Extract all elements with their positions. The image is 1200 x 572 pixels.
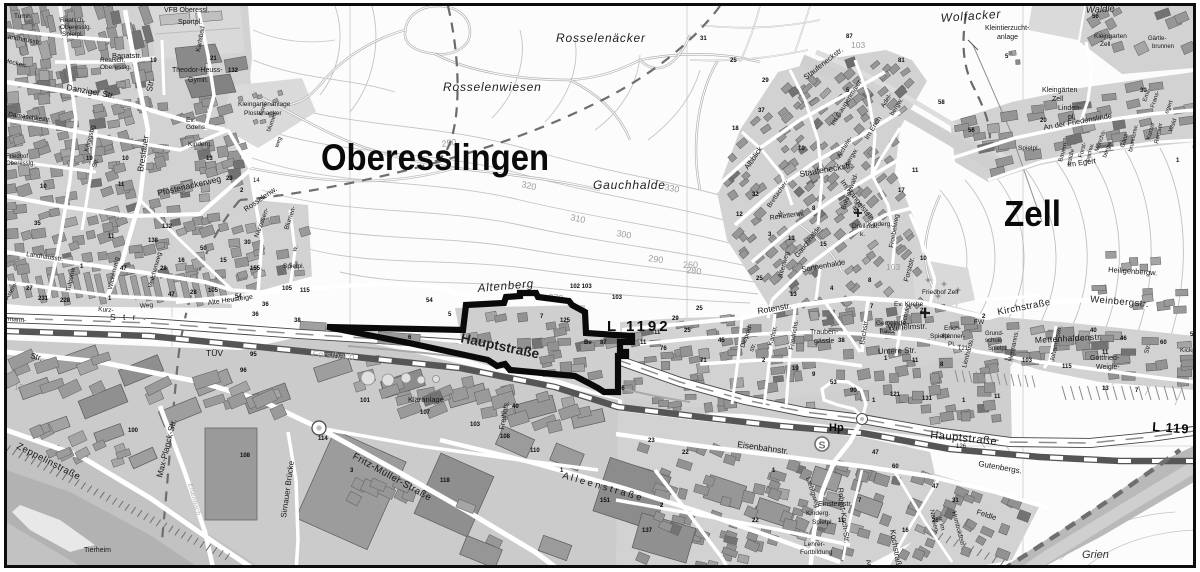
svg-text:Oberesslg.: Oberesslg.: [100, 64, 132, 71]
svg-text:53: 53: [830, 380, 837, 386]
svg-text:137: 137: [642, 528, 653, 534]
svg-text:Tierheim: Tierheim: [84, 547, 111, 554]
svg-text:Pl.: Pl.: [948, 341, 956, 348]
svg-text:Zell: Zell: [1052, 96, 1064, 103]
svg-text:S t r .: S t r .: [110, 312, 148, 322]
svg-text:132: 132: [162, 224, 173, 230]
svg-text:19: 19: [792, 366, 799, 372]
svg-text:Linden-: Linden-: [1058, 105, 1082, 112]
svg-text:29: 29: [762, 78, 769, 84]
svg-text:Kläranlage: Kläranlage: [408, 395, 444, 404]
svg-text:95: 95: [250, 352, 257, 358]
svg-text:103: 103: [886, 262, 900, 272]
svg-text:brunnen: brunnen: [1152, 44, 1174, 50]
svg-text:27: 27: [26, 286, 33, 292]
svg-text:58: 58: [938, 100, 945, 106]
svg-text:28: 28: [160, 266, 167, 272]
svg-text:31: 31: [700, 36, 707, 42]
svg-text:15: 15: [220, 258, 227, 264]
svg-text:18: 18: [732, 126, 739, 132]
svg-text:151: 151: [600, 498, 611, 504]
svg-text:32: 32: [752, 192, 759, 198]
svg-text:90: 90: [850, 388, 857, 394]
svg-text:60: 60: [892, 464, 899, 470]
svg-text:Realsch.: Realsch.: [100, 57, 125, 64]
svg-text:Theodor-Heuss-: Theodor-Heuss-: [172, 67, 223, 74]
svg-text:54: 54: [235, 294, 242, 300]
svg-text:Ev.: Ev.: [186, 117, 195, 124]
svg-text:Lehrer-: Lehrer-: [804, 541, 825, 548]
svg-text:Friedhof Zell: Friedhof Zell: [922, 289, 959, 296]
svg-text:108: 108: [500, 434, 511, 440]
svg-text:10: 10: [920, 256, 927, 262]
svg-text:Realsch.: Realsch.: [60, 17, 85, 24]
svg-text:Kinderg.: Kinderg.: [868, 221, 892, 228]
svg-text:13: 13: [206, 156, 213, 162]
svg-text:38: 38: [838, 338, 845, 344]
svg-text:19: 19: [86, 156, 93, 162]
svg-text:29: 29: [672, 316, 679, 322]
svg-text:47: 47: [932, 484, 939, 490]
svg-text:Spielpl.: Spielpl.: [1018, 145, 1040, 152]
svg-text:10: 10: [122, 156, 129, 162]
svg-text:25: 25: [684, 328, 691, 334]
svg-text:Oberesslingen: Oberesslingen: [321, 137, 549, 178]
svg-text:11: 11: [994, 394, 1001, 400]
svg-text:31: 31: [952, 498, 959, 504]
svg-text:Turnh.: Turnh.: [14, 13, 33, 20]
svg-text:Hp: Hp: [829, 422, 844, 434]
svg-text:Grund-: Grund-: [985, 331, 1004, 337]
svg-text:228: 228: [60, 298, 71, 304]
svg-text:121: 121: [14, 382, 28, 392]
svg-text:138: 138: [148, 238, 159, 244]
svg-text:37: 37: [758, 108, 765, 114]
svg-text:115: 115: [300, 288, 310, 294]
svg-text:Kurz-: Kurz-: [98, 306, 114, 314]
svg-text:20: 20: [1040, 118, 1047, 124]
svg-text:anlage: anlage: [997, 34, 1018, 41]
svg-text:114: 114: [318, 436, 328, 442]
svg-text:23: 23: [226, 176, 233, 182]
svg-text:47: 47: [872, 450, 879, 456]
svg-text:13: 13: [1102, 386, 1109, 392]
svg-text:231: 231: [38, 296, 49, 302]
svg-text:Spielpl.: Spielpl.: [988, 346, 1008, 352]
svg-text:11: 11: [838, 518, 845, 524]
svg-text:Friedhof: Friedhof: [6, 154, 28, 160]
svg-text:87: 87: [600, 340, 607, 346]
svg-text:Str.: Str.: [144, 78, 156, 92]
svg-text:Rosselenäcker: Rosselenäcker: [556, 31, 646, 45]
svg-text:10: 10: [40, 184, 47, 190]
svg-text:25: 25: [756, 276, 763, 282]
svg-text:Weigle-: Weigle-: [1096, 364, 1120, 371]
svg-text:71: 71: [700, 358, 707, 364]
svg-text:115: 115: [345, 329, 355, 335]
svg-text:105: 105: [282, 286, 293, 292]
svg-text:Kinderg.: Kinderg.: [188, 141, 212, 148]
svg-text:108: 108: [240, 453, 251, 459]
svg-text:38: 38: [294, 318, 301, 324]
svg-text:25: 25: [696, 306, 703, 312]
svg-text:FW: FW: [974, 319, 985, 326]
svg-text:40: 40: [1090, 328, 1097, 334]
svg-text:S: S: [818, 440, 825, 452]
svg-text:30: 30: [1140, 88, 1147, 94]
svg-text:Untere Str.: Untere Str.: [878, 346, 917, 356]
svg-text:21: 21: [210, 56, 217, 62]
svg-text:11: 11: [118, 182, 125, 188]
svg-text:10: 10: [798, 146, 805, 152]
svg-text:96: 96: [240, 368, 247, 374]
svg-text:Gdehs.: Gdehs.: [186, 124, 207, 131]
svg-text:11: 11: [1102, 350, 1109, 356]
svg-text:Spielpl.: Spielpl.: [283, 263, 305, 270]
svg-text:131: 131: [922, 396, 933, 402]
svg-text:47: 47: [120, 266, 127, 272]
svg-text:36: 36: [262, 302, 269, 308]
svg-text:16: 16: [178, 258, 185, 264]
svg-text:155: 155: [250, 266, 261, 272]
svg-text:Gauchhalde: Gauchhalde: [593, 178, 666, 192]
svg-text:56: 56: [1092, 14, 1099, 20]
svg-text:Zell: Zell: [1100, 41, 1111, 48]
svg-text:Be: Be: [584, 340, 592, 346]
svg-text:45: 45: [718, 338, 725, 344]
svg-text:81: 81: [898, 58, 905, 64]
svg-text:Fortbildung: Fortbildung: [800, 549, 833, 556]
svg-text:40: 40: [512, 404, 519, 410]
svg-text:103: 103: [612, 295, 623, 301]
svg-text:Wilhelmstr.: Wilhelmstr.: [888, 322, 927, 332]
svg-text:schule: schule: [985, 338, 1003, 344]
svg-text:Erich-: Erich-: [944, 325, 961, 332]
svg-text:102 103: 102 103: [570, 284, 592, 290]
svg-text:VFB Oberessl.: VFB Oberessl.: [164, 7, 210, 14]
svg-text:101: 101: [360, 398, 371, 404]
svg-text:L 1192: L 1192: [607, 318, 671, 335]
svg-text:103: 103: [851, 40, 865, 50]
svg-text:22: 22: [920, 308, 927, 314]
svg-text:Kinderg.: Kinderg.: [806, 510, 830, 517]
svg-text:107: 107: [420, 410, 431, 416]
svg-text:125: 125: [560, 318, 571, 324]
svg-text:TÜV: TÜV: [206, 348, 223, 358]
svg-text:121: 121: [890, 392, 901, 398]
svg-text:76: 76: [660, 346, 667, 352]
svg-text:16: 16: [902, 528, 909, 534]
svg-text:36: 36: [618, 386, 625, 392]
svg-text:103: 103: [1022, 358, 1033, 364]
svg-text:Oberesslg.: Oberesslg.: [60, 24, 92, 31]
svg-text:22: 22: [682, 450, 689, 456]
svg-text:Spielpl.: Spielpl.: [930, 333, 952, 340]
svg-text:L 119: L 119: [1152, 419, 1190, 437]
svg-text:22: 22: [752, 518, 759, 524]
svg-text:13: 13: [790, 292, 797, 298]
svg-text:14: 14: [253, 178, 260, 184]
svg-text:56: 56: [968, 128, 975, 134]
svg-text:100: 100: [128, 428, 139, 434]
svg-text:35: 35: [34, 221, 41, 227]
svg-text:115: 115: [1062, 364, 1072, 370]
svg-text:290: 290: [648, 253, 664, 265]
svg-text:Kleingarten: Kleingarten: [1094, 33, 1127, 40]
svg-text:11: 11: [108, 234, 115, 240]
svg-text:gässle: gässle: [814, 338, 834, 345]
svg-text:110: 110: [530, 448, 540, 454]
svg-text:Gottfried-: Gottfried-: [1090, 355, 1120, 362]
svg-text:28: 28: [190, 290, 197, 296]
svg-text:Grien: Grien: [1082, 549, 1109, 561]
svg-text:15: 15: [820, 242, 827, 248]
svg-text:Spielpl.: Spielpl.: [812, 519, 834, 526]
svg-text:Rosselenwiesen: Rosselenwiesen: [443, 80, 542, 94]
svg-text:11: 11: [640, 340, 647, 346]
svg-text:19: 19: [150, 58, 157, 64]
svg-text:47: 47: [168, 292, 175, 298]
svg-text:23: 23: [648, 438, 655, 444]
svg-text:Kleingärten: Kleingärten: [1042, 87, 1078, 94]
svg-text:12: 12: [736, 212, 743, 218]
svg-text:28: 28: [932, 518, 939, 524]
svg-text:Kleintierzucht-: Kleintierzucht-: [985, 25, 1030, 32]
svg-text:Gymn.: Gymn.: [188, 77, 209, 84]
svg-text:46: 46: [1120, 336, 1127, 342]
svg-text:25: 25: [730, 58, 737, 64]
svg-text:54: 54: [426, 298, 433, 304]
svg-text:60: 60: [1160, 340, 1167, 346]
svg-text:17: 17: [898, 188, 905, 194]
svg-text:Gärtle-: Gärtle-: [1148, 36, 1166, 42]
svg-text:118: 118: [440, 478, 450, 484]
svg-text:Spielpl.: Spielpl.: [62, 31, 84, 38]
svg-text:103: 103: [470, 422, 481, 428]
svg-text:90: 90: [590, 332, 597, 338]
svg-text:30: 30: [244, 240, 251, 246]
svg-text:82: 82: [618, 352, 625, 358]
svg-text:11: 11: [912, 358, 919, 364]
svg-text:Einsteinstr.: Einsteinstr.: [818, 501, 852, 508]
svg-text:Oberesslg.: Oberesslg.: [6, 161, 35, 167]
svg-text:132: 132: [228, 68, 239, 74]
svg-text:Trauben-: Trauben-: [810, 329, 839, 336]
svg-text:36: 36: [252, 312, 259, 318]
svg-text:50: 50: [200, 246, 207, 252]
svg-text:11: 11: [654, 330, 661, 336]
svg-text:87: 87: [846, 34, 853, 40]
svg-text:k.: k.: [860, 231, 865, 238]
svg-text:13: 13: [788, 236, 795, 242]
svg-text:260: 260: [683, 260, 698, 270]
svg-text:105: 105: [208, 288, 219, 294]
svg-text:11: 11: [912, 168, 919, 174]
svg-text:Sportpl.: Sportpl.: [178, 19, 202, 26]
svg-text:Zell: Zell: [1004, 193, 1061, 234]
svg-text:126: 126: [956, 444, 967, 450]
svg-text:Weg: Weg: [140, 302, 154, 310]
